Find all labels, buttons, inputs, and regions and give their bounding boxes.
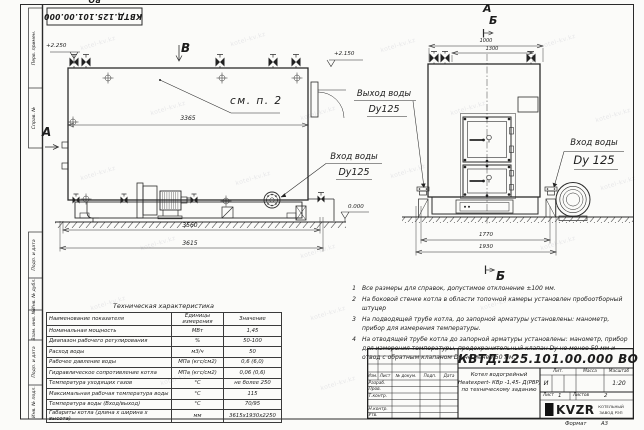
callout-water-inlet-front-dy: Dy 125 [566,155,622,167]
view-letter-a-side: А [42,126,51,138]
title-block: Изм. Лист № докум. Подп. Дата Разраб. Пр… [367,348,634,419]
table-row: Рабочее давление водыМПа (кгс/см2)0,6 (6… [47,357,282,368]
bolt-dots [266,117,556,208]
tech-cell: 50 [224,347,282,358]
tech-cell: 50-100 [224,336,282,347]
dim-1300: 1300 [476,47,508,52]
tech-cell: Рабочее давление воды [47,357,172,368]
company-logo: KVZR [556,404,595,416]
tb-sheets-value: 2 [604,394,608,400]
company-name-1: КОТЕЛЬНЫЙ [591,405,631,409]
tb-col-izm: Изм. [367,374,378,378]
callout-water-inlet-side-dy: Dy125 [326,168,382,178]
tech-cell: 0,6 (6,0) [224,357,282,368]
tb-col-dokum: № докум. [392,374,420,378]
dim-3560: 3560 [172,223,208,229]
tech-cell: Температура уходящих газов [47,378,172,389]
tb-col-podp: Подп. [420,374,440,378]
view-letter-b-bottom: Б [496,270,505,282]
callout-water-outlet-dy: Dy125 [362,105,406,115]
dim-3615: 3615 [172,241,208,247]
tb-row-prov: Пров. [369,388,382,392]
elevation-marks [50,52,369,222]
tb-lit-label: Лит. [540,370,576,374]
tb-row-nkontr: Н.контр. [369,408,388,412]
tech-cell: °С [172,389,224,400]
tech-cell: Расход воды [47,347,172,358]
tech-cell: °С [172,378,224,389]
dim-1770: 1770 [470,233,502,239]
tech-cell: МПа (кгс/см2) [172,368,224,379]
drawing-sheet: kotel-kv.kz kotel-kv.kz kotel-kv.kz kote… [0,0,644,430]
tech-cell: Гидравлическое сопротивление котла [47,368,172,379]
callout-water-inlet-side: Вход воды [326,153,382,162]
tb-sheet-value: 1 [558,394,562,400]
format-label: Формат [565,421,587,427]
tb-product-name-1: Котел водогрейный [458,373,540,378]
tech-cell: 0,06 (0,6) [224,368,282,379]
tb-row-tkontr: Т.контр. [369,395,388,399]
tech-table-title: Техническая характеристика [46,302,281,310]
note-number: 2 [346,295,362,313]
tb-sheet-label: Лист [543,394,554,398]
table-row: Номинальная мощностьМВт1,45 [47,326,282,337]
table-row: Диапазон рабочего регулирования%50-100 [47,336,282,347]
company-name-2: ЗАВОД РЭП [591,411,631,415]
tech-header-name: Наименование показателя [47,313,172,326]
format-value: А3 [601,421,608,427]
tb-product-name-3: по техническому заданию [458,388,540,393]
tb-row-razrab: Разраб. [369,382,386,386]
tech-cell: Номинальная мощность [47,326,172,337]
tech-cell: % [172,336,224,347]
tech-header-units: Единицы измерения [172,313,224,326]
note-item: 1Все размеры для справок, допустимое отк… [346,284,628,293]
view-letter-a-top: А [483,3,492,14]
table-row: Гидравлическое сопротивление котлаМПа (к… [47,368,282,379]
tech-cell: Габариты котла (длина х ширина х высота) [47,410,172,423]
callout-water-outlet: Выход воды [352,90,416,99]
valve-stems [71,52,534,197]
leader-arrowheads [281,183,558,198]
dim-1000: 1000 [470,39,502,44]
table-row: Габариты котла (длина х ширина х высота)… [47,410,282,423]
tb-product-name-2: Heatexpert- КВр -1,45- Д(РВР) [458,381,540,386]
elevation-ground: 0.000 [348,205,364,211]
note-number: 4 [346,335,362,362]
tb-scale-value: 1:20 [604,381,634,387]
table-row: Расход водым3/ч50 [47,347,282,358]
note-text: На подводящей трубе котла, до запорной а… [362,315,628,333]
frame-col-inv-podl: Инв. № подл. [29,362,41,430]
tech-table: Наименование показателя Единицы измерени… [46,312,282,423]
elevation-top-left: +2.250 [46,44,66,50]
note-number: 1 [346,284,362,293]
elevation-outlet: +2.150 [334,52,354,58]
frame-col-perv-primen: Перв. примен. [29,8,41,88]
view-arrows [45,29,495,274]
view-letter-v: В [181,42,190,54]
table-row: Температура воды (Вход/выход)°С70/95 [47,399,282,410]
callout-water-inlet-front: Вход воды [564,139,624,148]
tech-cell: 1,45 [224,326,282,337]
table-row: Максимальная рабочая температура воды°С1… [47,389,282,400]
note-item: 2На боковой стенке котла в области топоч… [346,295,628,313]
dim-1930: 1930 [470,245,502,251]
table-row: Температура уходящих газов°Сне более 250 [47,378,282,389]
tb-lit-value: И [540,380,552,387]
view-letter-b-top: Б [489,15,497,26]
tech-cell: Диапазон рабочего регулирования [47,336,172,347]
note-item: 3На подводящей трубе котла, до запорной … [346,315,628,333]
top-stamp-doc-number: КВТД.125.101.00.000 ВО [47,8,142,25]
tech-cell: 70/95 [224,399,282,410]
tb-col-list: Лист [378,374,392,378]
logo-emblem-icon [545,403,554,416]
tech-cell: 115 [224,389,282,400]
tech-cell: не более 250 [224,378,282,389]
tb-row-utv: Утв. [369,414,378,418]
tech-cell: Максимальная рабочая температура воды [47,389,172,400]
note-number: 3 [346,315,362,333]
tb-col-data: Дата [440,374,458,378]
note-text: На боковой стенке котла в области топочн… [362,295,628,313]
tech-cell: МВт [172,326,224,337]
tech-cell: Температура воды (Вход/выход) [47,399,172,410]
tech-cell: °С [172,399,224,410]
note-text: Все размеры для справок, допустимое откл… [362,284,628,293]
tech-cell: мм [172,410,224,423]
tech-header-value: Значение [224,313,282,326]
tb-scale-label: Масштаб [604,370,634,374]
dim-3365: 3365 [170,116,206,122]
boiler-side-view [55,68,346,228]
frame-col-sprav-no: Справ. № [29,78,41,158]
tech-cell: МПа (кгс/см2) [172,357,224,368]
see-note-callout: см. п. 2 [230,96,283,107]
tech-cell: 3615х1930х2250 [224,410,282,423]
tb-doc-number: КВТД.125.101.00.000 ВО [458,353,634,365]
tb-mass-label: Масса [576,370,604,374]
tb-sheets-label: Листов [573,394,589,398]
tech-cell: м3/ч [172,347,224,358]
